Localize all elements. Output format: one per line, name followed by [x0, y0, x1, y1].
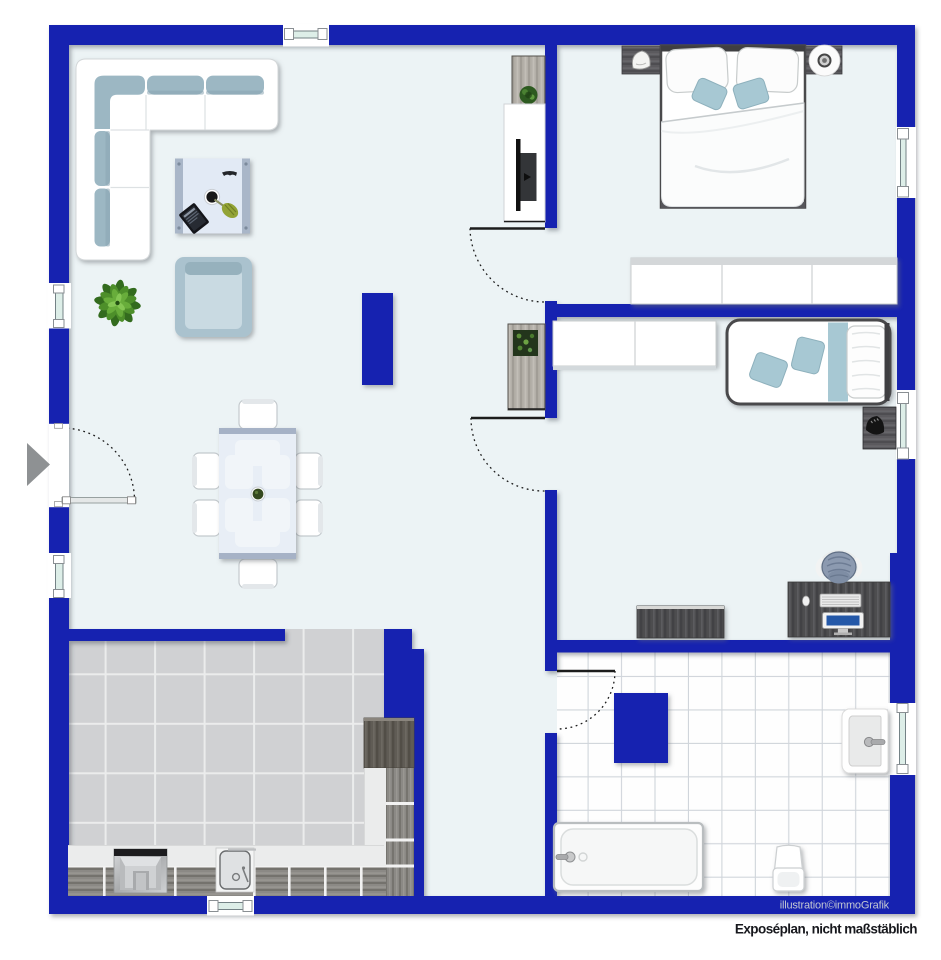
svg-text:Exposéplan, nicht maßstäblich: Exposéplan, nicht maßstäblich: [735, 922, 917, 937]
svg-text:illustration©immoGrafik: illustration©immoGrafik: [780, 900, 890, 912]
